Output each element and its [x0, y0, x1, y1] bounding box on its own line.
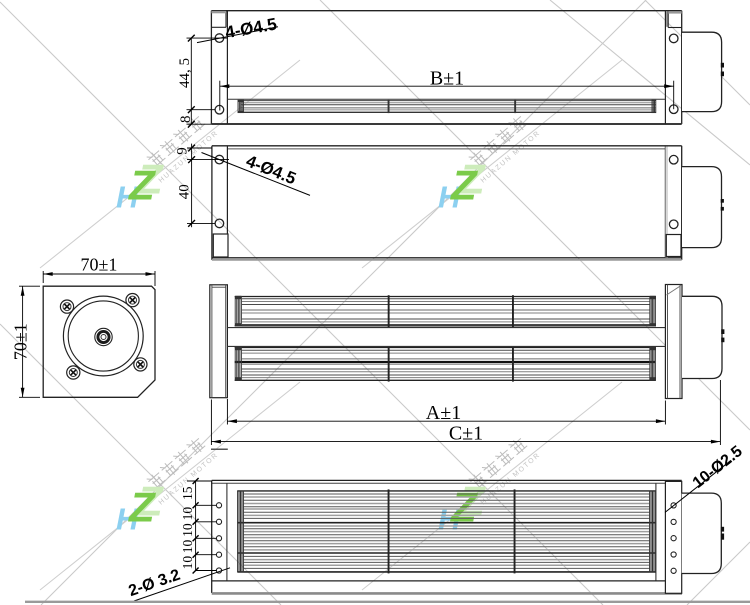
svg-text:44, 5: 44, 5	[177, 58, 193, 88]
svg-text:70±1: 70±1	[81, 255, 118, 275]
svg-text:10: 10	[180, 523, 195, 537]
svg-text:9: 9	[175, 147, 191, 155]
svg-text:10: 10	[180, 540, 195, 554]
svg-text:8: 8	[178, 116, 194, 124]
svg-text:B±1: B±1	[430, 68, 464, 90]
svg-text:C±1: C±1	[449, 422, 483, 444]
svg-text:70±1: 70±1	[11, 323, 31, 360]
svg-text:A±1: A±1	[426, 402, 461, 424]
svg-text:15: 15	[180, 486, 195, 500]
svg-text:40: 40	[177, 184, 193, 199]
svg-text:10: 10	[180, 507, 195, 521]
svg-text:10: 10	[180, 556, 195, 570]
